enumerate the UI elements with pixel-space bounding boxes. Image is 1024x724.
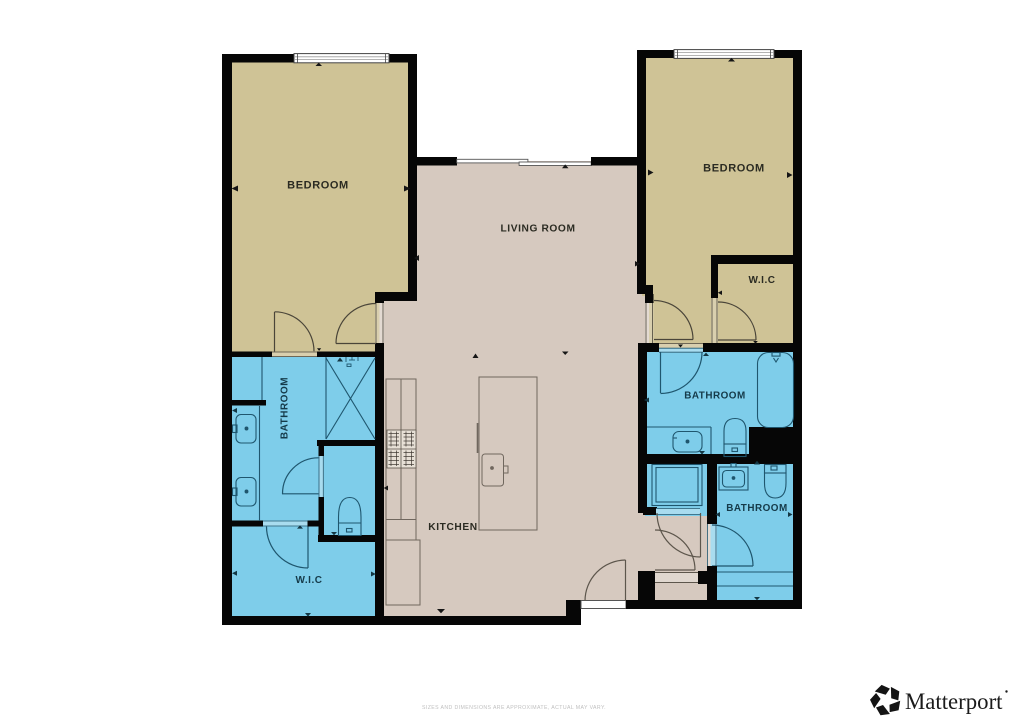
svg-text:W.I.C: W.I.C	[296, 575, 323, 586]
svg-text:BATHROOM: BATHROOM	[726, 503, 787, 514]
svg-text:BEDROOM: BEDROOM	[703, 163, 765, 175]
svg-text:BATHROOM: BATHROOM	[684, 391, 745, 402]
svg-text:SIZES AND DIMENSIONS ARE APPRO: SIZES AND DIMENSIONS ARE APPROXIMATE, AC…	[422, 705, 606, 711]
svg-text:BEDROOM: BEDROOM	[287, 180, 349, 192]
svg-text:BATHROOM: BATHROOM	[280, 377, 291, 439]
svg-text:LIVING ROOM: LIVING ROOM	[500, 224, 575, 235]
svg-text:W.I.C: W.I.C	[749, 275, 776, 286]
svg-text:Matterport: Matterport	[905, 689, 1003, 714]
svg-text:KITCHEN: KITCHEN	[428, 522, 477, 533]
